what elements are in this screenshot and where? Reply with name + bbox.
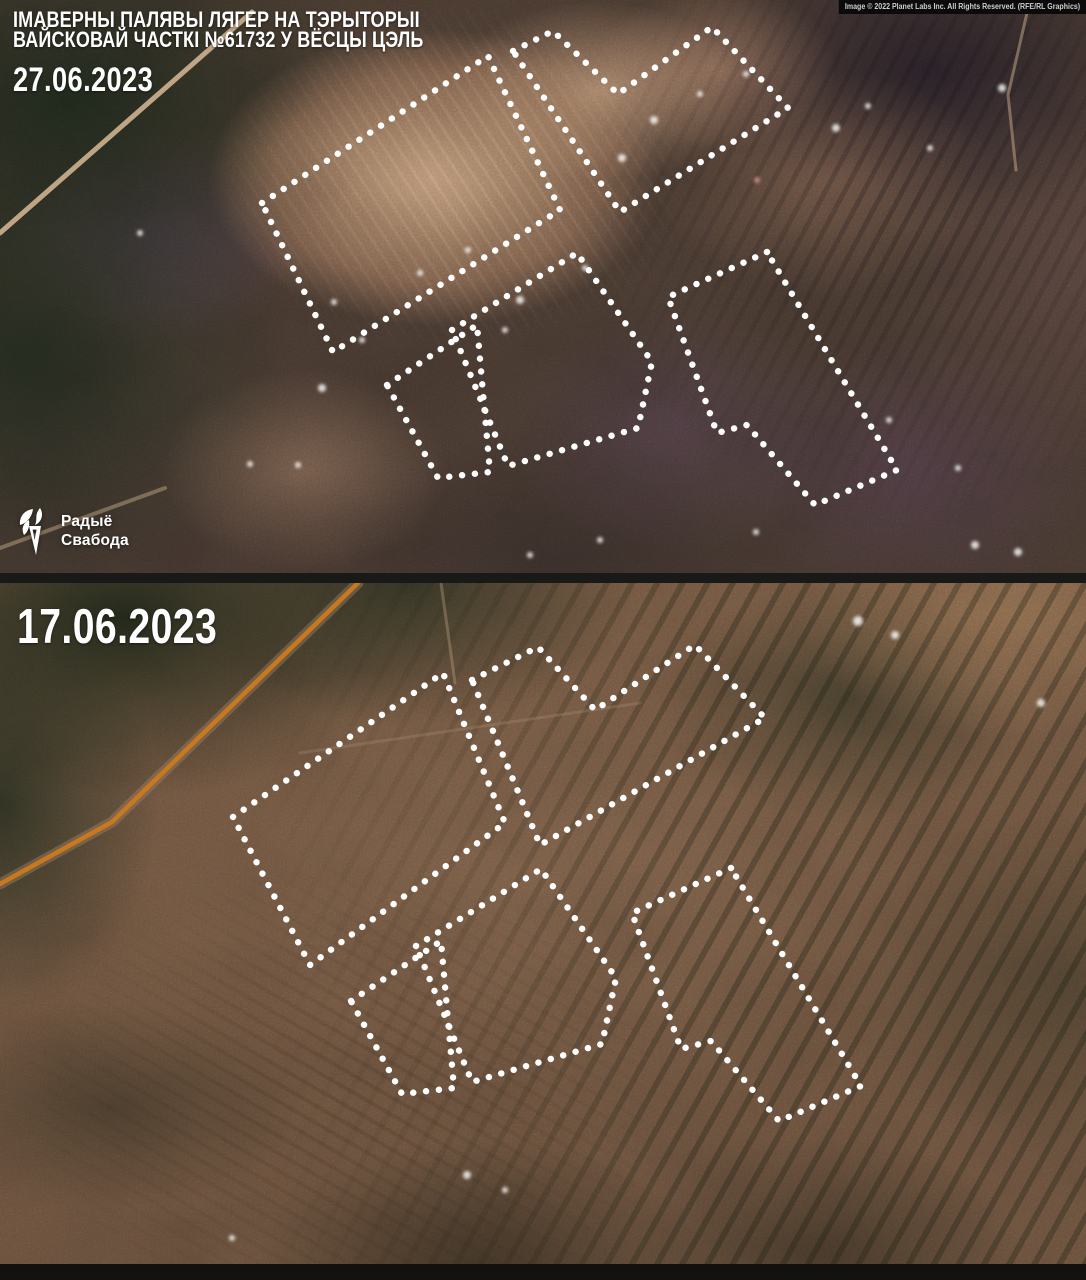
satellite-panel-17-06: 17.06.2023 <box>0 583 1086 1272</box>
torch-icon <box>16 507 52 555</box>
logo-text: Радыё Свабода <box>61 512 129 550</box>
date-label-top: 27.06.2023 <box>13 61 424 100</box>
panel-divider <box>0 573 1086 583</box>
logo-text-line1: Радыё <box>61 512 129 531</box>
rfe-rl-logo: Радыё Свабода <box>16 507 129 555</box>
field-track-texture <box>0 583 1086 1272</box>
satellite-panel-27-06: ІМАВЕРНЫ ПАЛЯВЫ ЛЯГЕР НА ТЭРЫТОРЫІ ВАЙСК… <box>0 0 1086 573</box>
graphic-title-line2: ВАЙСКОВАЙ ЧАСТКІ №61732 У ВЁСЦЫ ЦЭЛЬ <box>13 30 424 50</box>
date-label-bottom: 17.06.2023 <box>17 599 217 655</box>
logo-text-line2: Свабода <box>61 531 129 550</box>
image-credit: Image © 2022 Planet Labs Inc. All Rights… <box>838 0 1086 14</box>
panel-caption-top: ІМАВЕРНЫ ПАЛЯВЫ ЛЯГЕР НА ТЭРЫТОРЫІ ВАЙСК… <box>13 10 424 100</box>
satellite-comparison-graphic: ІМАВЕРНЫ ПАЛЯВЫ ЛЯГЕР НА ТЭРЫТОРЫІ ВАЙСК… <box>0 0 1086 1280</box>
bottom-edge-strip <box>0 1264 1086 1272</box>
panel-caption-bottom: 17.06.2023 <box>17 599 217 655</box>
